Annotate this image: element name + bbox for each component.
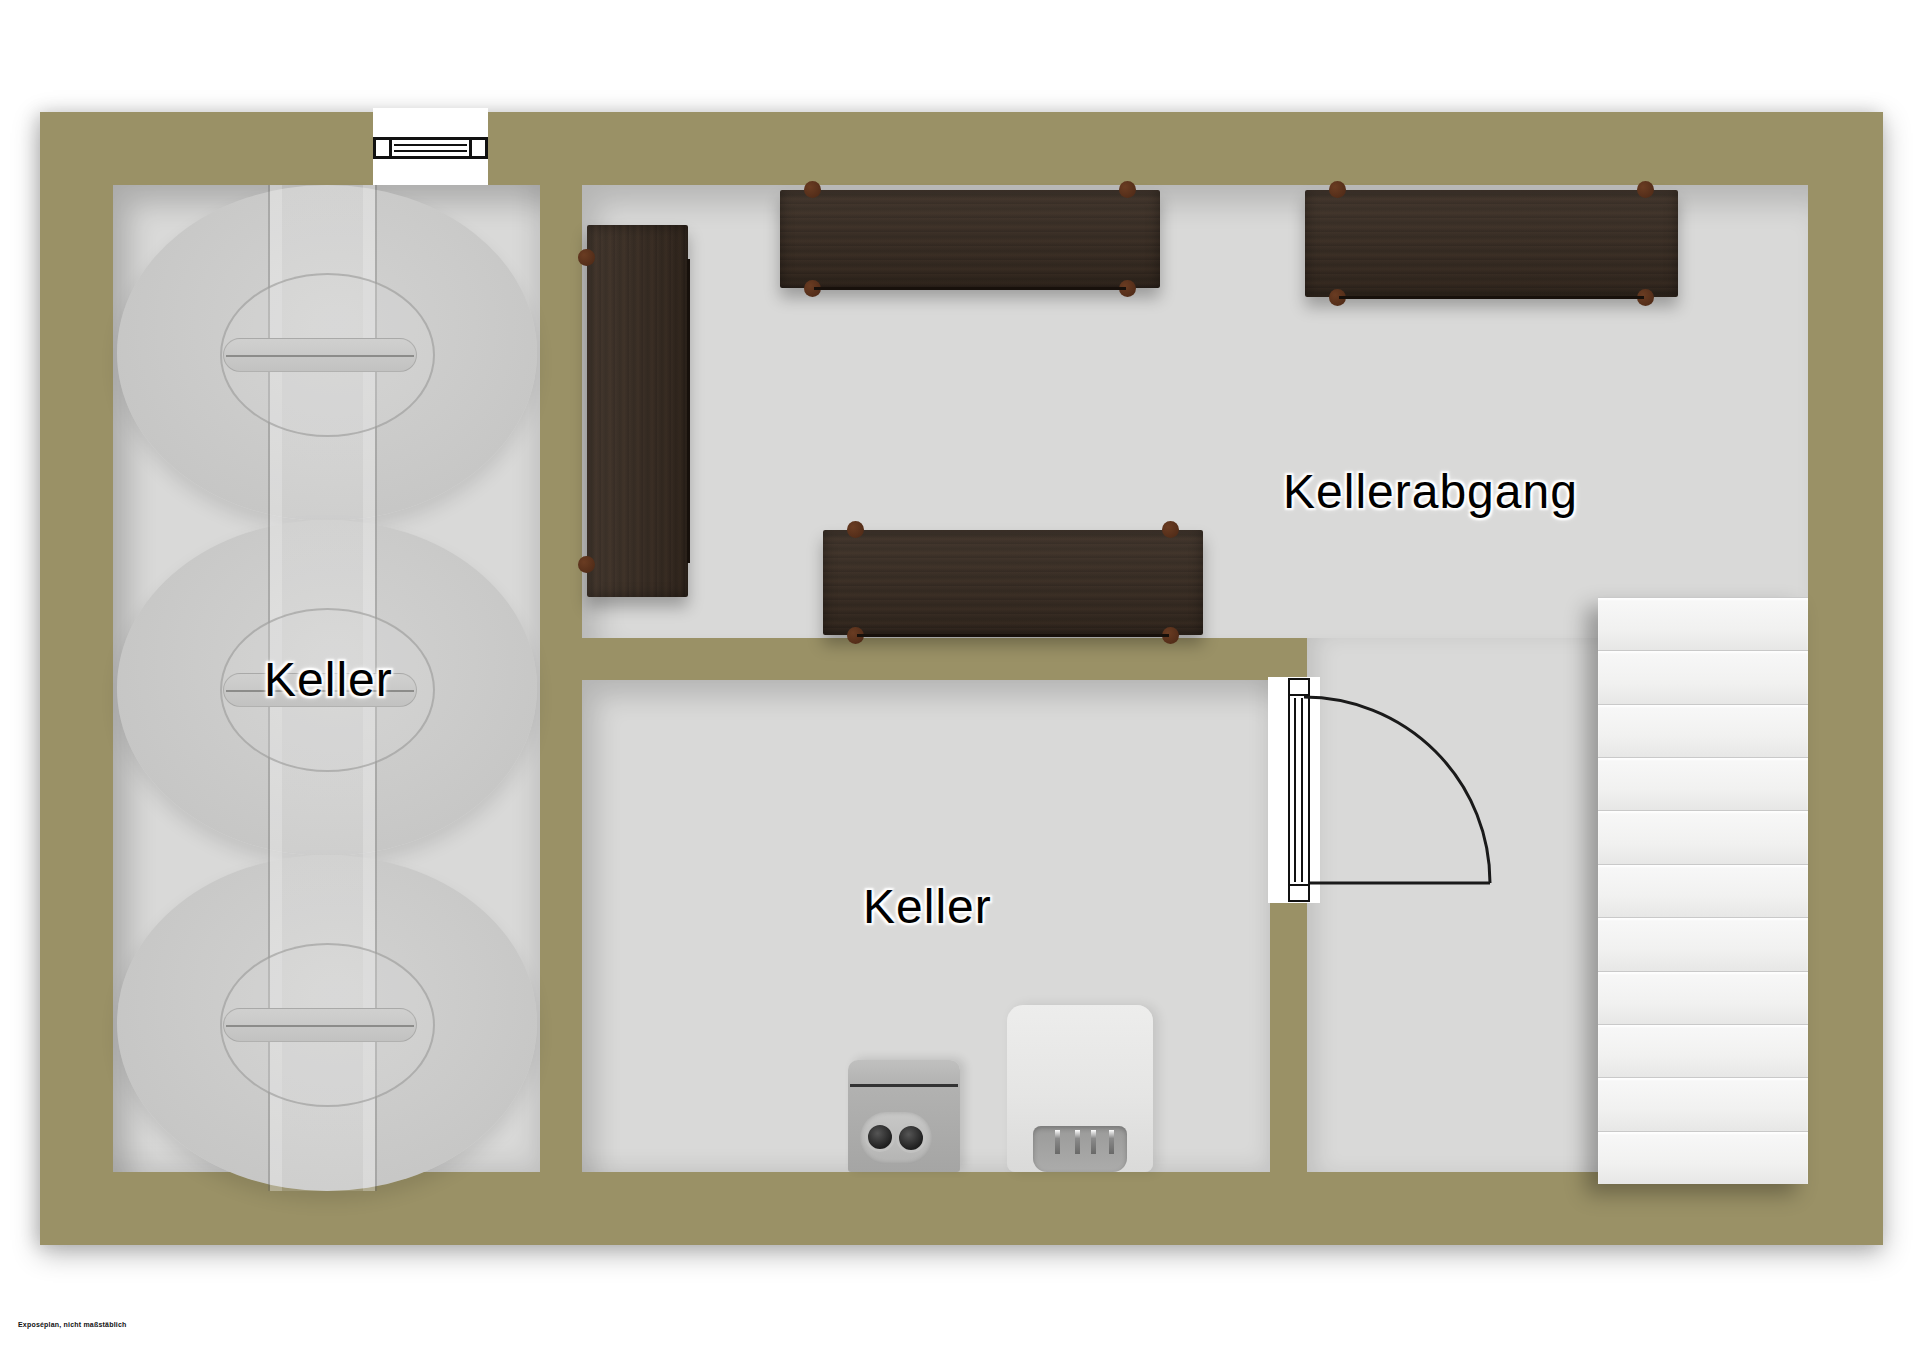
- stair-step: [1598, 810, 1808, 863]
- heating-unit: [848, 1060, 960, 1172]
- window-symbol: [373, 137, 488, 159]
- connection-pin: [1109, 1130, 1114, 1154]
- stair-step: [1598, 704, 1808, 757]
- shelf: [780, 190, 1160, 288]
- stair-step: [1598, 1131, 1808, 1184]
- stair-step: [1598, 917, 1808, 970]
- door-swing-arc: [1290, 690, 1510, 900]
- shelf: [823, 530, 1203, 635]
- shelf-foot: [1119, 181, 1136, 198]
- room-label-kellerabgang: Kellerabgang: [1283, 464, 1578, 519]
- shelf-foot: [847, 627, 864, 644]
- room-label-keller-left: Keller: [264, 652, 393, 707]
- connection-pin: [1091, 1130, 1096, 1154]
- shelf-foot: [578, 556, 595, 573]
- window-frame-end: [469, 140, 485, 156]
- window-frame-end: [376, 140, 392, 156]
- tank-handle: [223, 1008, 417, 1042]
- shelf-foot: [578, 249, 595, 266]
- connection-pin: [1055, 1130, 1060, 1154]
- room-label-keller-bottom: Keller: [863, 879, 992, 934]
- pipe-boss: [860, 1112, 932, 1164]
- tank-handle: [223, 338, 417, 372]
- stair-step: [1598, 1024, 1808, 1077]
- shelf-foot: [1119, 280, 1136, 297]
- shelf-foot: [804, 280, 821, 297]
- boiler: [1007, 1005, 1153, 1172]
- stair-step: [1598, 757, 1808, 810]
- shelf-foot: [1162, 521, 1179, 538]
- stair-step: [1598, 971, 1808, 1024]
- shelf: [587, 225, 688, 597]
- shelf-foot: [847, 521, 864, 538]
- shelf: [1305, 190, 1678, 297]
- shelf-foot: [1329, 181, 1346, 198]
- boiler-connections: [1033, 1126, 1127, 1172]
- interior-wall-horizontal: [582, 638, 1307, 680]
- shelf-foot: [1162, 627, 1179, 644]
- pipe-connection: [865, 1122, 895, 1152]
- pipe-connection: [896, 1123, 926, 1153]
- shelf-foot: [804, 181, 821, 198]
- connection-pin: [1075, 1130, 1080, 1154]
- plan-footnote: Exposéplan, nicht maßstäblich: [18, 1321, 127, 1328]
- stair-step: [1598, 597, 1808, 650]
- staircase: [1598, 597, 1808, 1184]
- shelf-foot: [1637, 181, 1654, 198]
- floor-plan: Keller Keller Kellerabgang Exposéplan, n…: [0, 0, 1920, 1357]
- stair-step: [1598, 650, 1808, 703]
- stair-step: [1598, 864, 1808, 917]
- stair-step: [1598, 1077, 1808, 1130]
- shelf-foot: [1637, 289, 1654, 306]
- shelf-foot: [1329, 289, 1346, 306]
